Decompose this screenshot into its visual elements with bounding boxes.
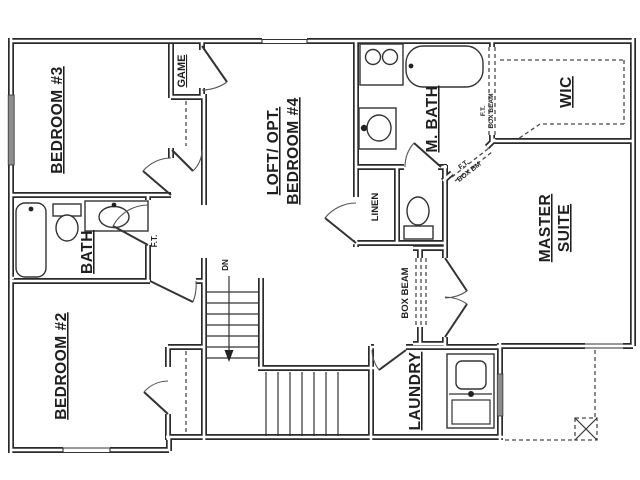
double-sink-right-icon (383, 50, 398, 65)
door-bedroom2-closet (144, 381, 168, 414)
label-box-beam-wic: BOX BEAM (488, 93, 495, 128)
label-master-line2: SUITE (556, 204, 573, 252)
toilet-tank-icon (53, 204, 81, 216)
label-bedroom-2: BEDROOM #2 (53, 312, 70, 420)
door-master-double-bottom (445, 297, 467, 337)
door-bedroom3-closet (172, 150, 202, 171)
attic-access-icon (575, 418, 597, 440)
floor-plan-svg: BEDROOM #3 BEDROOM #2 BATH GAME LOFT/ OP… (0, 0, 640, 480)
wc-bowl-icon (407, 197, 429, 225)
label-game-closet: GAME (176, 55, 188, 88)
window-bedroom3-left (8, 95, 14, 165)
label-diagonal-opening: F.T. BOX BM (451, 154, 483, 184)
label-wic: WIC (558, 76, 575, 108)
stairs-arrow-icon (225, 350, 234, 362)
label-loft-line2: BEDROOM #4 (285, 97, 302, 205)
mbath-sink-icon (367, 115, 391, 141)
label-laundry: LAUNDRY (407, 351, 424, 430)
window-laundry-right (497, 374, 503, 416)
double-sink-left-icon (366, 50, 381, 65)
toilet-bowl-icon (56, 215, 78, 241)
windows (8, 40, 623, 453)
bathtub-icon (16, 203, 46, 277)
label-master-line1: MASTER (537, 194, 554, 262)
room-labels: BEDROOM #3 BEDROOM #2 BATH GAME LOFT/ OP… (49, 55, 575, 431)
label-ft-wic: F.T. (480, 106, 487, 116)
door-bedroom2 (150, 281, 196, 302)
label-master-bath: M. BATH (424, 86, 441, 153)
floor-plan-image: BEDROOM #3 BEDROOM #2 BATH GAME LOFT/ OP… (0, 0, 640, 480)
door-master-double-top (445, 258, 467, 298)
door-laundry (372, 350, 406, 370)
master-tub-icon (406, 46, 483, 87)
mbath-faucet-icon (361, 125, 367, 131)
label-bedroom-3: BEDROOM #3 (49, 66, 66, 174)
door-game-closet (202, 46, 227, 90)
box-beam-opening (416, 258, 426, 327)
door-bedroom3 (143, 158, 171, 195)
window-top-wall (262, 40, 307, 44)
label-stairs-dn: DN (221, 259, 230, 271)
window-master-bottom (585, 344, 623, 348)
sink-faucet-icon (112, 203, 117, 208)
label-box-beam-center: BOX BEAM (400, 267, 411, 318)
roof-line-dashed (505, 350, 595, 440)
label-ft-hall: F.T. (150, 235, 159, 247)
washer-dryer-icon (447, 354, 494, 428)
door-linen (325, 203, 356, 243)
wc-tank-icon (404, 226, 433, 239)
tub-faucet-icon (29, 207, 34, 212)
stairs (206, 276, 338, 436)
master-tub-faucet-icon (409, 64, 414, 69)
label-linen: LINEN (370, 193, 381, 222)
label-bath: BATH (79, 230, 96, 274)
double-vanity-icon (360, 44, 403, 85)
label-loft-line1: LOFT/ OPT. (265, 107, 282, 196)
window-bedroom2-bottom (63, 448, 110, 453)
